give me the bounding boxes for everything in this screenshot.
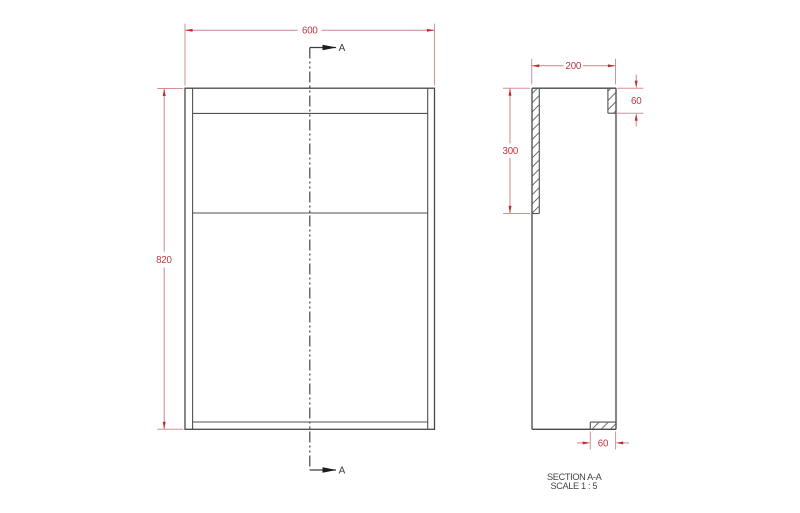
svg-text:300: 300: [503, 146, 519, 157]
svg-text:A: A: [339, 465, 346, 476]
svg-text:A: A: [339, 43, 346, 54]
svg-text:60: 60: [631, 96, 642, 107]
svg-text:820: 820: [156, 255, 172, 266]
svg-text:60: 60: [598, 438, 609, 449]
svg-text:200: 200: [566, 61, 582, 72]
svg-text:SCALE 1 : 5: SCALE 1 : 5: [550, 481, 597, 491]
svg-text:600: 600: [302, 26, 318, 37]
